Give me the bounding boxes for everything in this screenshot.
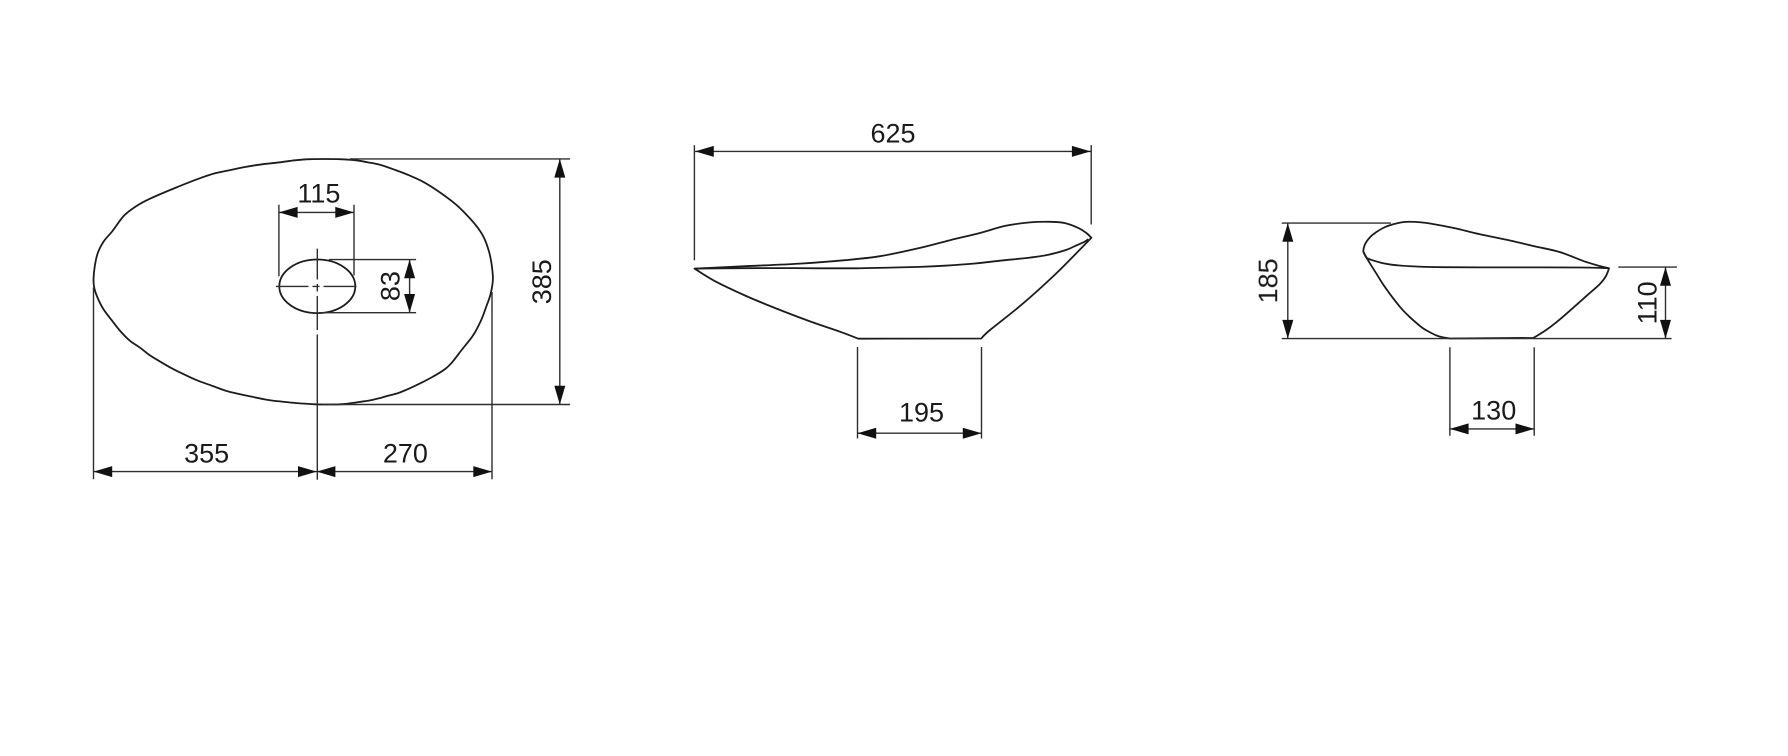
svg-text:625: 625 — [870, 118, 915, 148]
svg-text:130: 130 — [1471, 396, 1516, 426]
svg-text:385: 385 — [527, 259, 557, 304]
svg-text:110: 110 — [1633, 281, 1663, 324]
svg-text:270: 270 — [383, 438, 428, 468]
svg-text:195: 195 — [899, 398, 944, 428]
svg-text:355: 355 — [184, 438, 229, 468]
svg-text:185: 185 — [1253, 258, 1283, 303]
svg-text:83: 83 — [375, 271, 405, 301]
svg-text:115: 115 — [297, 179, 340, 209]
